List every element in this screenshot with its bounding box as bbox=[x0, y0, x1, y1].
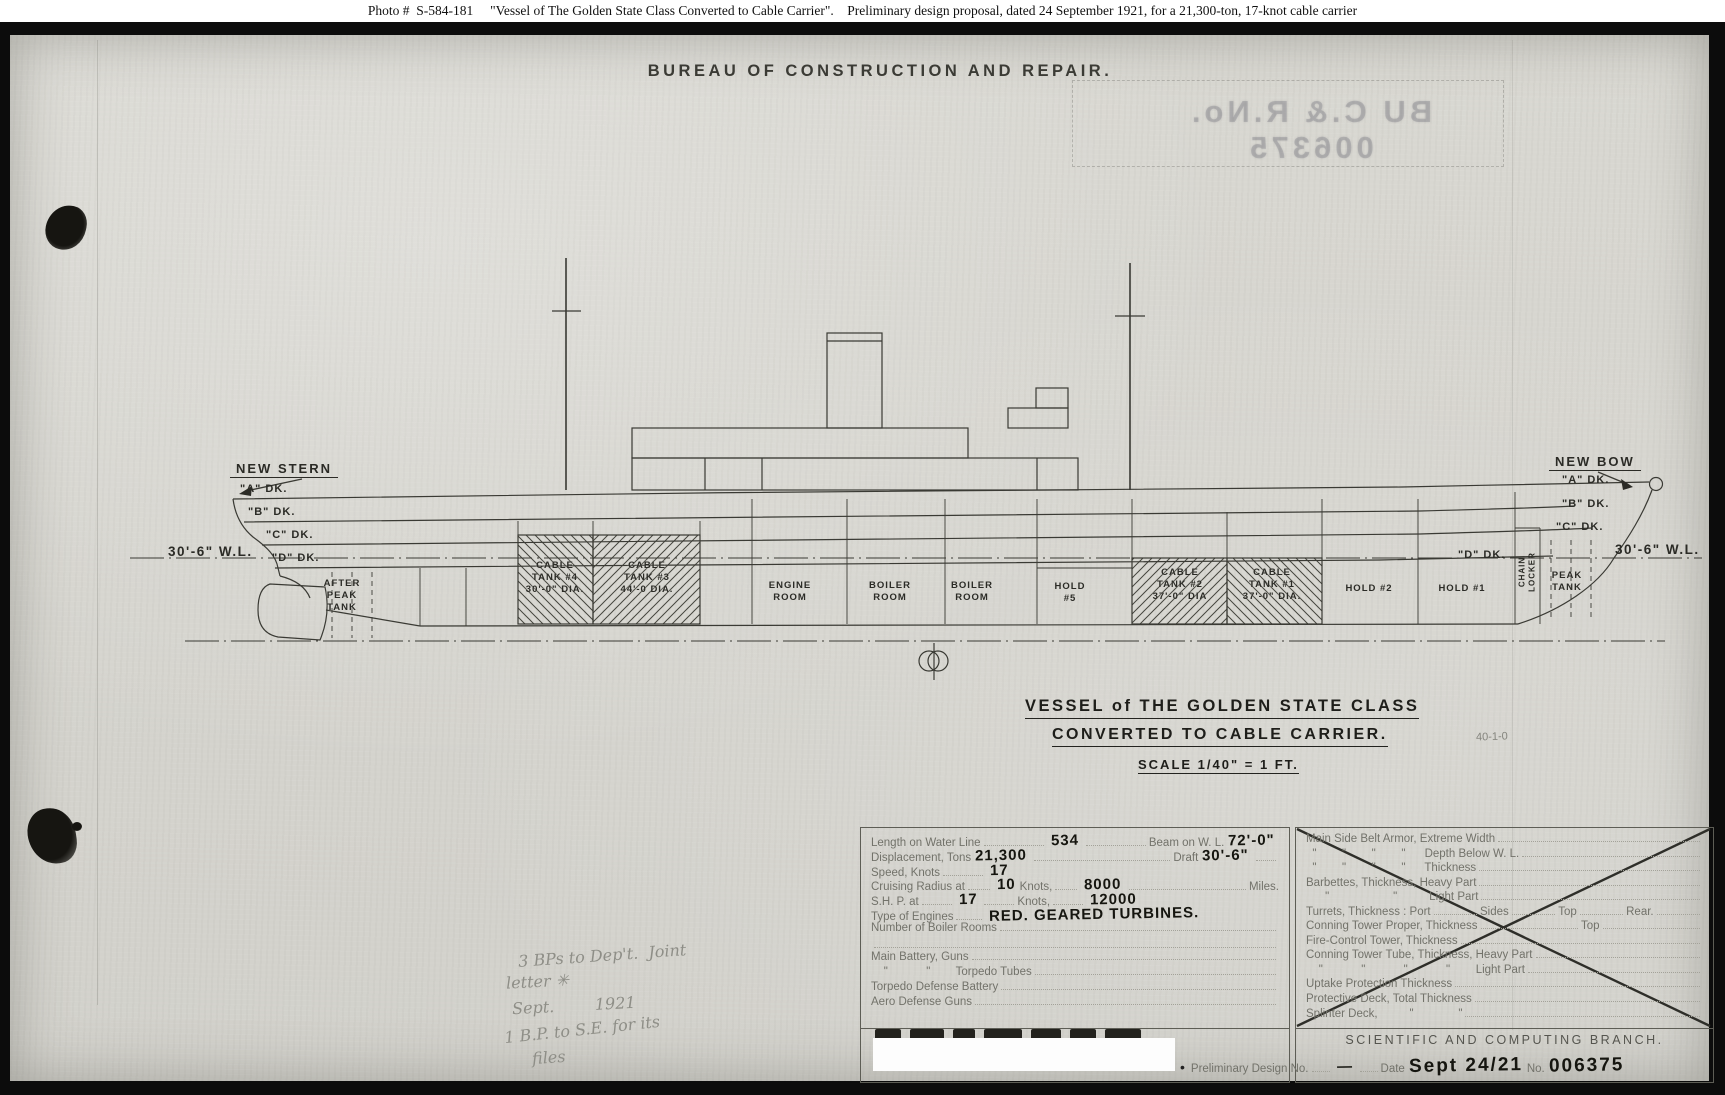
redaction-box bbox=[873, 1038, 1175, 1071]
date-label: Date bbox=[1381, 1063, 1405, 1075]
spec-label: Aero Defense Guns bbox=[871, 996, 972, 1008]
engine-room-label: ENGINE ROOM bbox=[769, 580, 811, 604]
spec-label: Speed, Knots bbox=[871, 867, 940, 879]
drawing-title-line2: CONVERTED TO CABLE CARRIER. bbox=[1052, 726, 1388, 747]
boiler-room-aft-label: BOILER ROOM bbox=[869, 580, 911, 604]
spec-value: 30'-6" bbox=[1198, 846, 1253, 864]
armor-label: " " " " Light Part bbox=[1306, 964, 1525, 976]
spec-label: Main Battery, Guns bbox=[871, 951, 969, 963]
new-stern-label: NEW STERN bbox=[230, 461, 338, 478]
new-bow-label: NEW BOW bbox=[1549, 454, 1641, 471]
deck-a-left-label: "A" DK. bbox=[240, 483, 287, 495]
hold-1-label: HOLD #1 bbox=[1438, 583, 1485, 595]
armor-label: Conning Tower Tube, Thickness, Heavy Par… bbox=[1306, 949, 1533, 961]
cable-tank-2-label: CABLE TANK #2 37'-0" DIA bbox=[1153, 567, 1208, 603]
waterline-left-label: 30'-6" W.L. bbox=[168, 544, 253, 559]
photo-caption: Photo # S-584-181 "Vessel of The Golden … bbox=[0, 0, 1725, 22]
bullet-dot: • bbox=[1180, 1059, 1185, 1075]
spec-value: 534 bbox=[1047, 832, 1083, 850]
deck-b-right-label: "B" DK. bbox=[1562, 498, 1609, 510]
armor-row-conning: Conning Tower Proper, Thickness Top bbox=[1306, 920, 1703, 935]
number-value: 006375 bbox=[1545, 1054, 1629, 1077]
armor-label: Protective Deck, Total Thickness bbox=[1306, 993, 1472, 1005]
armor-label: " " " " Depth Below W. L. bbox=[1306, 848, 1519, 860]
chain-locker-label: CHAIN LOCKER bbox=[1517, 552, 1536, 592]
spec-value: 17 bbox=[955, 891, 982, 908]
pencil-note-line2: letter ✳ bbox=[506, 970, 570, 992]
peak-tank-label: PEAK TANK bbox=[1552, 570, 1582, 594]
spec-row-aero-defense: Aero Defense Guns bbox=[871, 996, 1279, 1011]
bureau-heading: BUREAU OF CONSTRUCTION AND REPAIR. bbox=[560, 62, 1200, 81]
spec-row-length: Length on Water Line 534 Beam on W. L. 7… bbox=[871, 833, 1279, 848]
armor-label: Splinter Deck, " " bbox=[1306, 1008, 1462, 1020]
armor-table: Main Side Belt Armor, Extreme Width " " … bbox=[1295, 827, 1714, 1083]
scanned-drawing-page: Photo # S-584-181 "Vessel of The Golden … bbox=[0, 0, 1725, 1095]
armor-label: Uptake Protection Thickness bbox=[1306, 978, 1452, 990]
prelim-design-label: Preliminary Design No. bbox=[1191, 1063, 1309, 1075]
spec-label: Cruising Radius at bbox=[871, 881, 965, 893]
spec-label: Knots, bbox=[1020, 881, 1053, 893]
spec-row-boiler-rooms: Number of Boiler Rooms bbox=[871, 922, 1279, 937]
hold-2-label: HOLD #2 bbox=[1345, 583, 1392, 595]
drawing-scale-note: SCALE 1/40" = 1 FT. bbox=[1138, 757, 1299, 774]
deck-c-right-label: "C" DK. bbox=[1556, 521, 1603, 533]
spec-label: Miles. bbox=[1249, 881, 1279, 893]
spec-label: Displacement, Tons bbox=[871, 852, 971, 864]
spec-row-torpedo-tubes: " " Torpedo Tubes bbox=[871, 966, 1279, 981]
spec-row-main-battery: Main Battery, Guns bbox=[871, 951, 1279, 966]
deck-d-right-label: "D" DK. bbox=[1458, 549, 1505, 561]
boiler-room-fwd-label: BOILER ROOM bbox=[951, 580, 993, 604]
armor-label: " " Light Part bbox=[1306, 891, 1478, 903]
armor-label: " " " " Thickness bbox=[1306, 862, 1476, 874]
after-peak-tank-label: AFTER PEAK TANK bbox=[324, 578, 361, 614]
spec-label: " " Torpedo Tubes bbox=[871, 966, 1032, 978]
spec-value: 10 bbox=[993, 876, 1020, 893]
number-label: No. bbox=[1527, 1063, 1545, 1075]
spec-row-torpedo-defense: Torpedo Defense Battery bbox=[871, 981, 1279, 996]
spec-row-displacement: Displacement, Tons 21,300 Draft 30'-6" bbox=[871, 848, 1279, 863]
armor-label: Main Side Belt Armor, Extreme Width bbox=[1306, 833, 1495, 845]
armor-row-turrets: Turrets, Thickness : Port Sides Top Rear… bbox=[1306, 906, 1703, 921]
prelim-design-value: — bbox=[1332, 1058, 1356, 1075]
deck-a-right-label: "A" DK. bbox=[1562, 474, 1609, 486]
corner-pencil-note: 40-1-0 bbox=[1476, 730, 1508, 743]
design-number-row: • Preliminary Design No. — Date Sept 24/… bbox=[1180, 1056, 1714, 1078]
spec-row-engines: Type of Engines RED. GEARED TURBINES. bbox=[871, 907, 1279, 922]
cable-tank-3-label: CABLE TANK #3 44'-0 DIA. bbox=[621, 560, 674, 596]
armor-label: Barbettes, Thickness, Heavy Part bbox=[1306, 877, 1476, 889]
spec-label: S.H. P. at bbox=[871, 896, 919, 908]
waterline-right-label: 30'-6" W.L. bbox=[1615, 542, 1700, 557]
spec-label: Length on Water Line bbox=[871, 837, 981, 849]
spec-row-speed: Speed, Knots 17 bbox=[871, 863, 1279, 878]
deck-b-left-label: "B" DK. bbox=[248, 506, 295, 518]
mirrored-bleedthrough-stamp: BU C.& R.No. 006375 bbox=[1130, 94, 1490, 166]
paper-fold-line bbox=[97, 40, 98, 1005]
hold-5-label: HOLD #5 bbox=[1055, 581, 1086, 605]
deck-d-left-label: "D" DK. bbox=[272, 552, 319, 564]
spec-label: Number of Boiler Rooms bbox=[871, 922, 997, 934]
branch-name: SCIENTIFIC AND COMPUTING BRANCH. bbox=[1296, 1033, 1713, 1047]
spec-row-shp: S.H. P. at 17 Knots, 12000 bbox=[871, 892, 1279, 907]
spec-row-blank bbox=[871, 937, 1279, 952]
cable-tank-4-label: CABLE TANK #4 30'-0" DIA. bbox=[526, 560, 584, 596]
armor-table-divider bbox=[1296, 1028, 1713, 1029]
spec-label: Draft bbox=[1173, 852, 1198, 864]
pencil-note-line5: files bbox=[531, 1047, 566, 1068]
cable-tank-1-label: CABLE TANK #1 37'-0" DIA. bbox=[1243, 567, 1301, 603]
date-value: Sept 24/21 bbox=[1405, 1054, 1527, 1078]
deck-c-left-label: "C" DK. bbox=[266, 529, 313, 541]
spec-label: Torpedo Defense Battery bbox=[871, 981, 998, 993]
armor-label: Fire-Control Tower, Thickness bbox=[1306, 935, 1458, 947]
spec-row-cruising-radius: Cruising Radius at 10 Knots, 8000 Miles. bbox=[871, 877, 1279, 892]
drawing-title-line1: VESSEL of THE GOLDEN STATE CLASS bbox=[1025, 697, 1419, 719]
ink-speck bbox=[72, 822, 82, 831]
